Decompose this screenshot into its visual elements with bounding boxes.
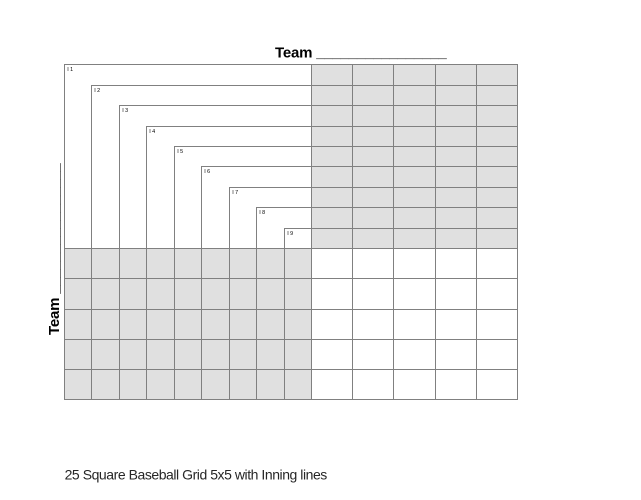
svg-text:I 9: I 9 — [287, 231, 293, 237]
svg-text:Team ________________: Team ________________ — [275, 45, 447, 62]
svg-text:25 Square Baseball Grid 5x5 wi: 25 Square Baseball Grid 5x5 with Inning … — [65, 467, 328, 483]
svg-text:I 5: I 5 — [177, 149, 183, 155]
svg-text:I 1: I 1 — [67, 67, 73, 73]
svg-text:I 8: I 8 — [259, 210, 265, 216]
svg-text:I 2: I 2 — [94, 88, 100, 94]
svg-text:I 7: I 7 — [232, 190, 238, 196]
svg-text:Team ________________: Team ________________ — [46, 163, 63, 335]
svg-text:I 4: I 4 — [149, 129, 155, 135]
svg-text:I 6: I 6 — [204, 169, 210, 175]
svg-text:I 3: I 3 — [122, 108, 128, 114]
